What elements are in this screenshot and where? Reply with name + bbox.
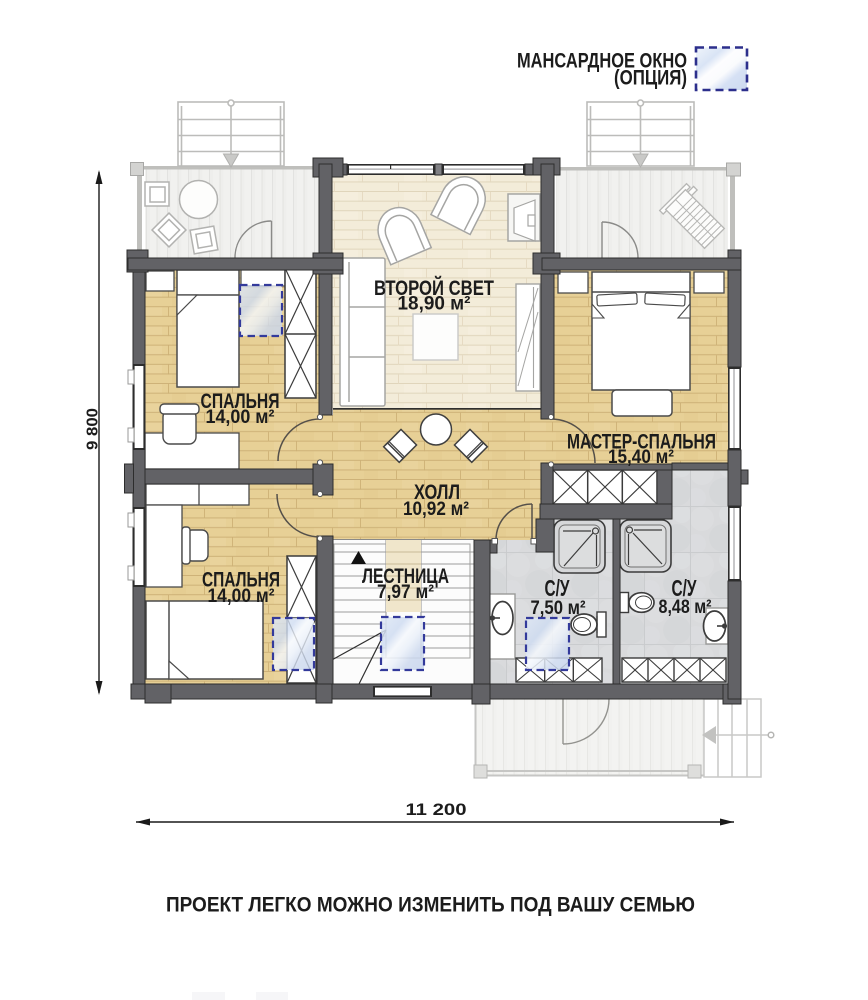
svg-text:7,50 м²: 7,50 м² (531, 598, 586, 619)
svg-text:7,97 м²: 7,97 м² (377, 582, 434, 603)
svg-text:11 200: 11 200 (406, 800, 467, 819)
svg-text:10,92 м²: 10,92 м² (403, 499, 469, 520)
svg-text:15,40 м²: 15,40 м² (608, 447, 674, 468)
svg-text:8,48 м²: 8,48 м² (659, 597, 712, 618)
svg-text:14,00 м²: 14,00 м² (206, 407, 275, 428)
svg-text:9 800: 9 800 (85, 408, 102, 450)
svg-text:18,90 м²: 18,90 м² (398, 294, 471, 315)
svg-text:ПРОЕКТ ЛЕГКО МОЖНО ИЗМЕНИТЬ ПО: ПРОЕКТ ЛЕГКО МОЖНО ИЗМЕНИТЬ ПОД ВАШУ СЕМ… (166, 894, 695, 917)
svg-text:(ОПЦИЯ): (ОПЦИЯ) (614, 67, 687, 90)
svg-text:14,00 м²: 14,00 м² (208, 586, 275, 607)
